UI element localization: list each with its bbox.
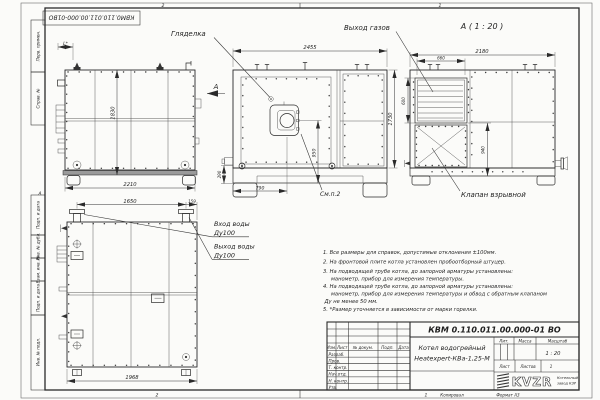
- label-water-out: Выход воды: [214, 243, 255, 251]
- note-line: Ду не менее 50 мм.: [324, 299, 378, 305]
- dim-top-width: 1968: [125, 375, 139, 381]
- dim-burner-offset: 790: [256, 186, 265, 192]
- view-front: 2455 1730 950 790 290 Гляделка См.п.2: [171, 30, 398, 198]
- tb-row-nkontr: Н. контр.: [329, 378, 349, 383]
- zone-mark: 2: [156, 393, 159, 399]
- top-left-stamp: КВМ0.110.011.00.000-01ВО: [43, 11, 140, 25]
- note-line: 1. Все размеры для справок, допустимые о…: [323, 250, 496, 256]
- dim-grille-height: 600: [401, 97, 406, 105]
- vent-valve-icon: [157, 63, 164, 71]
- dim-side-height: 1830: [111, 106, 117, 120]
- tb-col-doc: № докум.: [352, 345, 373, 350]
- tb-product-name-2: Heatexpert-КВа-1,25-М: [414, 355, 490, 363]
- note-line: 3. На подводящей трубе котла, до запорно…: [323, 269, 513, 275]
- label-sight-glass: Гляделка: [171, 30, 206, 38]
- zone-mark-left: А: [37, 191, 41, 197]
- margin-col-podp-data: Подп. и дата: [36, 201, 41, 229]
- dim-valve-height: 940: [481, 146, 486, 154]
- margin-col-podp-data-2: Подп. и дата: [36, 284, 41, 312]
- tb-col-list: Лист: [336, 345, 348, 350]
- note-line: 2. На фронтовой плите котла установлен п…: [323, 260, 506, 266]
- dim-front-width: 2455: [303, 45, 317, 51]
- tb-product-name-1: Котел водогрейный: [418, 344, 485, 352]
- view-a-title: А ( 1 : 20 ): [460, 22, 503, 31]
- dim-grille-width: 660: [437, 56, 445, 61]
- margin-col-perv-primen: Перв. примен.: [36, 31, 41, 62]
- view-arrow-label: А: [213, 83, 219, 91]
- tb-row-razrab: Разраб.: [329, 352, 345, 357]
- tb-row-nachotd: Нач.отд.: [329, 372, 347, 377]
- label-water-in: Вход воды: [214, 220, 250, 228]
- label-water-in-dn: Ду100: [213, 229, 235, 237]
- dim-burner-axis-height: 950: [312, 149, 318, 158]
- zone-mark: 1: [425, 393, 428, 399]
- tb-lit: Лит.: [498, 339, 508, 344]
- note-line: манометр, прибор для измерения температу…: [331, 292, 547, 298]
- zone-mark: 1: [439, 3, 442, 9]
- zone-mark: 2: [162, 3, 165, 9]
- label-see-note: См.п.2: [320, 191, 340, 198]
- tb-doc-number: КВМ 0.110.011.00.000-01 ВО: [428, 326, 561, 335]
- view-a: А ( 1 : 20 ): [344, 22, 568, 199]
- logo-sub-2: завод КЗР: [557, 382, 577, 386]
- label-gas-outlet: Выход газов: [344, 24, 390, 32]
- stamp-doc-number: КВМ0.110.011.00.000-01ВО: [48, 14, 134, 21]
- margin-col-sprav-no: Справ. №: [36, 88, 41, 109]
- drawing-sheet: 2 1 2 1 А Копировал Формат А3 Перв. прим…: [0, 0, 600, 400]
- dim-burner-length: L*: [63, 41, 69, 47]
- title-block: Изм. Лист № докум. Подп. Дата Разраб. Пр…: [327, 322, 579, 390]
- view-top: 1650 159 1968 Вход воды Ду100 Выход воды…: [57, 199, 255, 384]
- view-side: L* 1830 2210 А: [56, 41, 225, 192]
- note-line: 4. На подводящей трубе котла, до запорно…: [323, 284, 513, 290]
- dim-side-depth: 2210: [123, 182, 137, 188]
- tb-row-prov: Пров.: [329, 359, 341, 364]
- note-line: манометр, прибор для измерения температу…: [331, 277, 464, 283]
- logo-sub-1: Котельный: [557, 376, 579, 380]
- margin-col-vzam-inv: Взам. инв. №: [36, 255, 41, 284]
- note-line: 5. *Размер уточняется в зависимости от м…: [323, 307, 478, 313]
- dim-pipe-spacing: 1650: [123, 199, 137, 205]
- spring-icon: [497, 374, 509, 388]
- dim-base-height: 290: [217, 170, 222, 178]
- margin-col-inv-podl: Инв. № подл.: [36, 338, 41, 366]
- notes-block: 1. Все размеры для справок, допустимые о…: [323, 250, 547, 313]
- label-water-out-dn: Ду100: [213, 252, 235, 260]
- logo-text: KVZR: [512, 375, 553, 389]
- dim-viewa-width: 2180: [475, 49, 489, 55]
- kvzr-logo: KVZR Котельный завод КЗР: [497, 374, 579, 389]
- tb-listov-label: Листов: [519, 364, 536, 369]
- left-margin-columns: Перв. примен. Справ. № Подп. и дата Инв.…: [31, 20, 45, 390]
- tb-masshtab: Масштаб: [548, 339, 568, 344]
- tb-col-izm: Изм.: [327, 345, 337, 350]
- footer-kopiroval: Копировал: [440, 393, 464, 398]
- tb-listov-value: 1: [550, 364, 553, 369]
- vent-valve-icon: [74, 63, 81, 71]
- tb-list-label: Лист: [498, 364, 510, 369]
- footer-format: Формат А3: [496, 393, 520, 398]
- dim-pipe-edge: 159: [188, 199, 196, 204]
- tb-col-data: Дата: [397, 345, 409, 350]
- dim-front-height: 1730: [388, 112, 394, 126]
- label-explosion-valve: Клапан взрывной: [461, 191, 526, 199]
- tb-scale-value: 1 : 20: [546, 351, 562, 357]
- tb-row-tkontr: Т. контр.: [329, 365, 348, 370]
- tb-col-podp: Подп.: [381, 345, 393, 350]
- tb-row-utv: Утв.: [329, 385, 338, 390]
- tb-massa: Масса: [518, 339, 532, 344]
